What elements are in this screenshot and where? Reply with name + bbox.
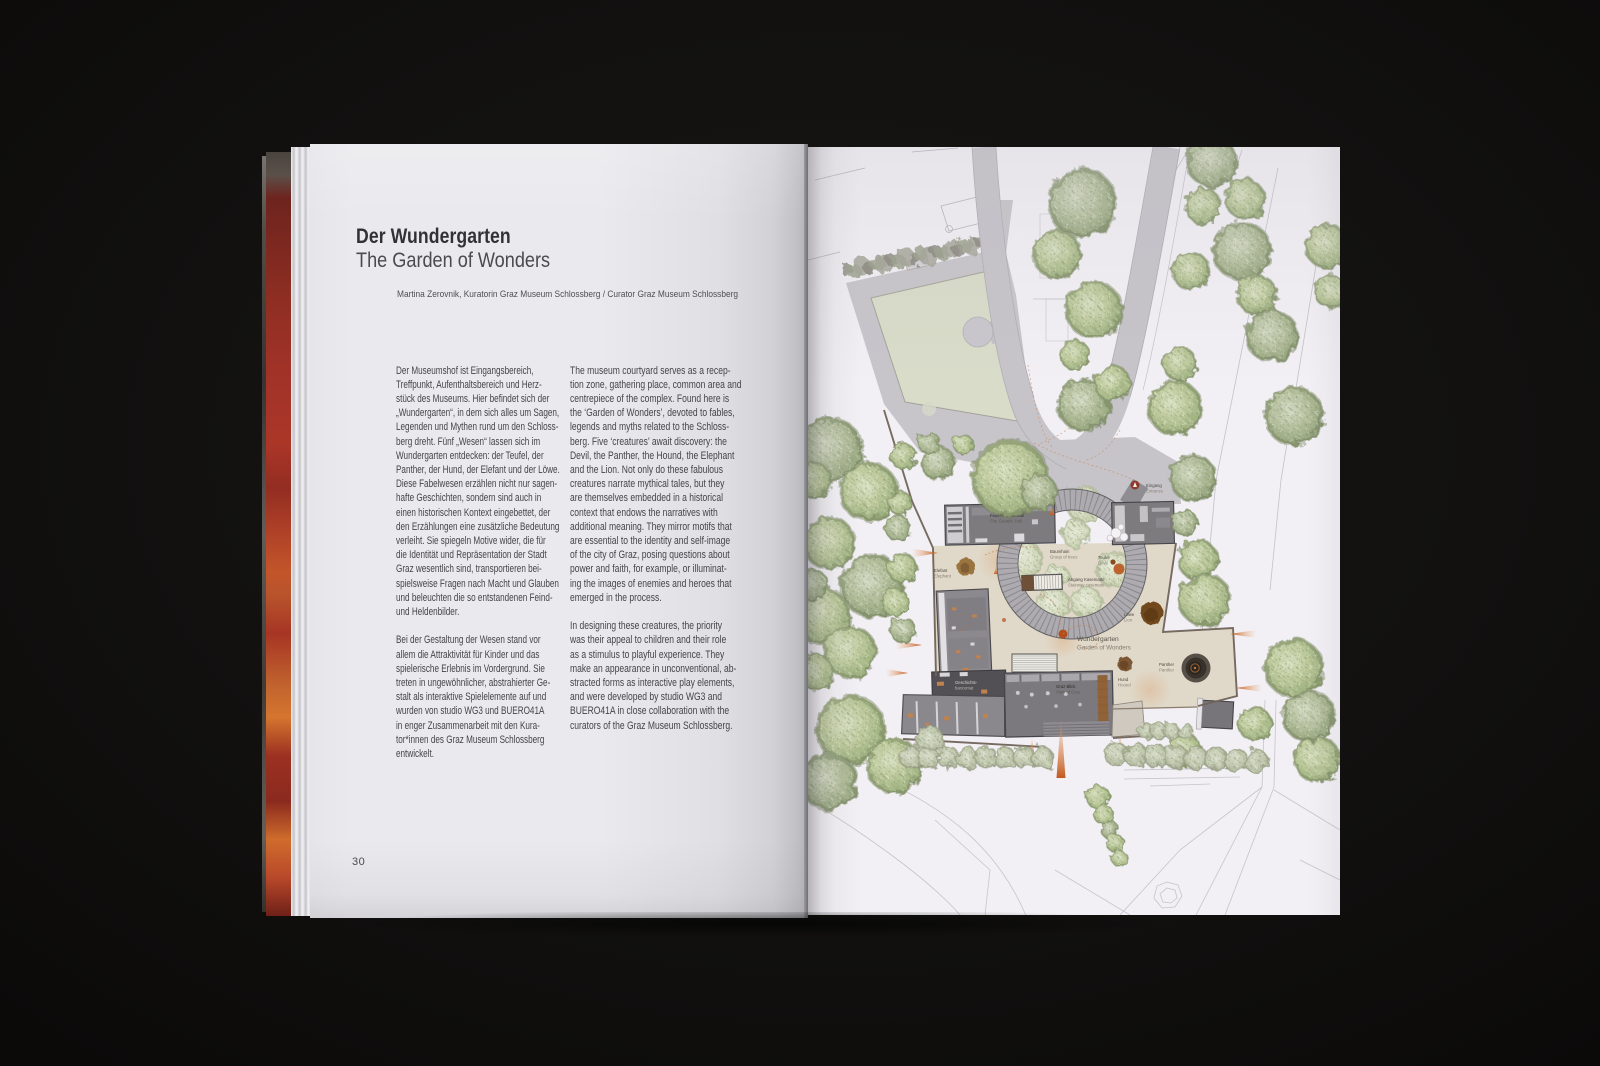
svg-text:Panther: Panther: [1159, 668, 1175, 673]
svg-text:bancomat: bancomat: [955, 685, 974, 690]
svg-text:Lion: Lion: [1124, 618, 1133, 623]
svg-text:Elefant: Elefant: [934, 568, 948, 573]
svg-text:Garden of Wonders: Garden of Wonders: [1077, 645, 1131, 652]
svg-text:Hound: Hound: [1118, 683, 1131, 688]
svg-text:Devil: Devil: [1098, 561, 1108, 566]
svg-text:View of Graz: View of Graz: [1056, 690, 1081, 695]
svg-text:Graz Blick: Graz Blick: [1056, 684, 1076, 689]
svg-text:Entrance: Entrance: [1146, 489, 1164, 494]
svg-text:Abgang Kasematte: Abgang Kasematte: [1068, 577, 1105, 582]
svg-text:Panther: Panther: [1159, 662, 1175, 667]
svg-text:Elephant: Elephant: [934, 574, 952, 579]
svg-text:Fire Guards’ Hall: Fire Guards’ Hall: [990, 519, 1022, 524]
svg-text:Teufel: Teufel: [1098, 555, 1110, 560]
svg-text:Geschichts-: Geschichts-: [955, 680, 978, 685]
svg-text:Stairway casemate: Stairway casemate: [1068, 583, 1105, 588]
svg-text:Löwe: Löwe: [1124, 612, 1135, 617]
svg-text:Wundergarten: Wundergarten: [1077, 636, 1119, 643]
svg-text:Group of trees: Group of trees: [1050, 555, 1077, 560]
svg-text:Eingang: Eingang: [1146, 483, 1162, 488]
svg-text:Hund: Hund: [1118, 677, 1129, 682]
svg-text:Baumhain: Baumhain: [1050, 549, 1070, 554]
